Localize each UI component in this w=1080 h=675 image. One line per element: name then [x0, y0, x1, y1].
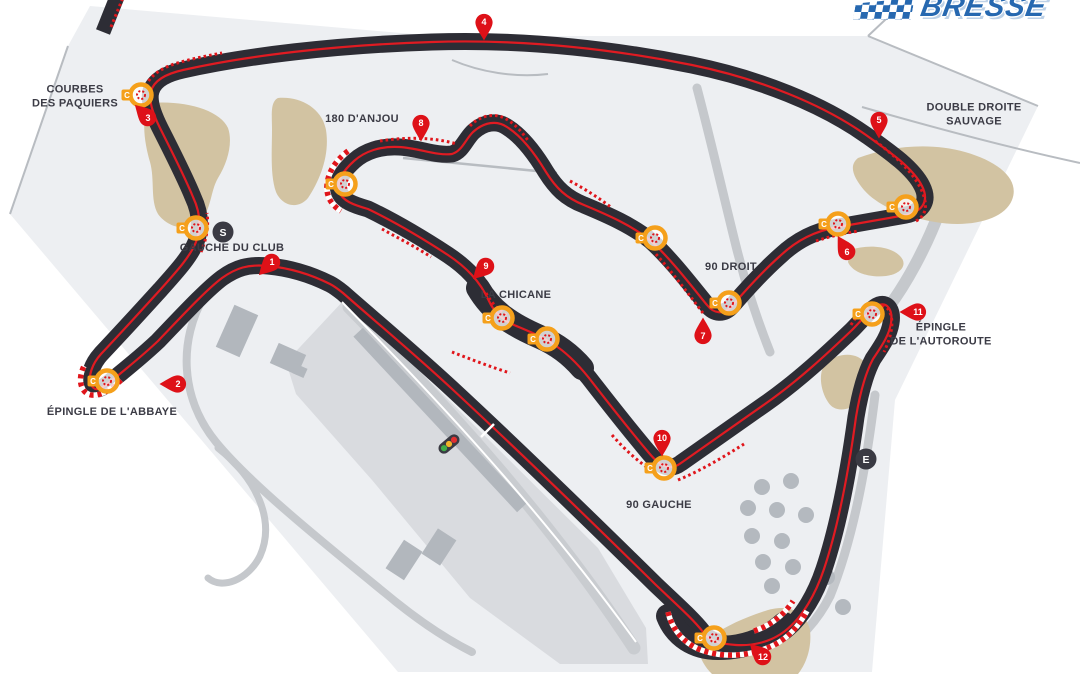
- svg-text:C: C: [821, 220, 827, 229]
- tree: [764, 578, 780, 594]
- svg-text:C: C: [855, 310, 861, 319]
- svg-text:E: E: [862, 454, 869, 466]
- svg-text:7: 7: [700, 331, 705, 341]
- corner-label: LA CHICANE: [481, 288, 551, 302]
- svg-text:9: 9: [483, 261, 488, 271]
- tree: [769, 502, 785, 518]
- tree: [754, 479, 770, 495]
- svg-text:11: 11: [913, 307, 923, 317]
- tree: [740, 500, 756, 516]
- svg-text:C: C: [485, 314, 491, 323]
- svg-text:C: C: [530, 335, 536, 344]
- corner-label: 90 DROIT: [705, 260, 757, 274]
- svg-text:C: C: [638, 234, 644, 243]
- end-marker: E: [856, 449, 877, 470]
- circuit-map-page: CCCCCCCCCCCCC123456789101112SE COURBES D…: [0, 0, 1080, 675]
- corner-label: GAUCHE DU CLUB: [180, 241, 284, 255]
- tree: [755, 554, 771, 570]
- svg-text:C: C: [647, 464, 653, 473]
- tree: [783, 473, 799, 489]
- svg-text:2: 2: [175, 379, 180, 389]
- tree: [774, 533, 790, 549]
- svg-text:5: 5: [876, 115, 881, 125]
- corner-label: DOUBLE DROITE SAUVAGE: [927, 101, 1022, 130]
- tree: [744, 528, 760, 544]
- svg-text:6: 6: [844, 247, 849, 257]
- start-marker: S: [213, 222, 234, 243]
- corner-label: ÉPINGLE DE L'AUTOROUTE: [890, 321, 991, 350]
- corner-label: COURBES DES PAQUIERS: [32, 83, 118, 112]
- bresse-logo-text: BRESSE: [918, 0, 1049, 24]
- svg-text:C: C: [712, 299, 718, 308]
- tree: [835, 599, 851, 615]
- corner-label: ÉPINGLE DE L'ABBAYE: [47, 405, 177, 419]
- corner-label: 180 D'ANJOU: [325, 112, 399, 126]
- tree: [785, 559, 801, 575]
- svg-text:3: 3: [145, 113, 150, 123]
- svg-text:C: C: [124, 91, 130, 100]
- corner-label: 90 GAUCHE: [626, 498, 692, 512]
- svg-text:C: C: [889, 203, 895, 212]
- svg-text:12: 12: [758, 652, 768, 662]
- bresse-logo: BRESSE: [852, 0, 1049, 24]
- svg-text:S: S: [219, 227, 226, 239]
- tree: [798, 507, 814, 523]
- svg-text:C: C: [90, 377, 96, 386]
- checkered-flag-icon: [853, 0, 915, 20]
- svg-text:10: 10: [657, 433, 667, 443]
- svg-text:1: 1: [269, 257, 274, 267]
- svg-text:4: 4: [481, 17, 486, 27]
- svg-text:8: 8: [418, 118, 423, 128]
- svg-text:C: C: [328, 180, 334, 189]
- svg-text:C: C: [697, 634, 703, 643]
- svg-text:C: C: [179, 224, 185, 233]
